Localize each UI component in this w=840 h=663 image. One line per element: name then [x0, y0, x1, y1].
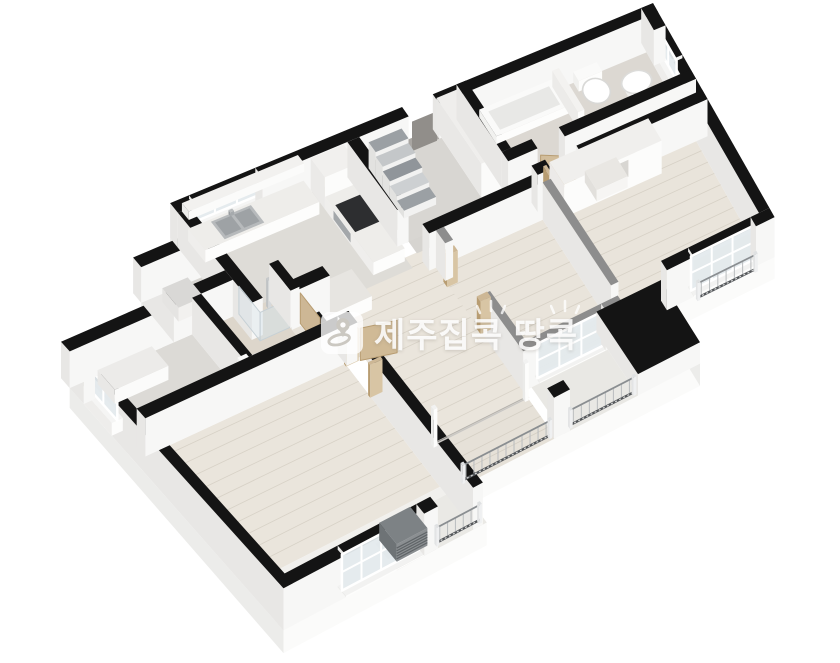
railing-bedroom-right: [755, 254, 758, 273]
railing-balcony-middle: [568, 408, 570, 429]
railing-balcony-middle: [570, 409, 573, 429]
railing-bedroom-right: [698, 282, 701, 301]
balcony-post: [523, 361, 525, 402]
railing-balcony-living: [548, 418, 550, 439]
wall: [654, 25, 666, 65]
railing-balcony-sw: [434, 525, 436, 547]
door-jamb: [481, 297, 491, 335]
floorplan-svg: [0, 0, 840, 663]
railing-balcony-living: [461, 463, 463, 484]
wall: [291, 287, 300, 328]
balcony-post: [525, 362, 529, 402]
balcony-post: [431, 406, 434, 447]
door-jamb: [370, 359, 382, 398]
door-jamb: [477, 296, 481, 334]
railing-bedroom-right: [696, 281, 698, 302]
shower-column: [266, 278, 268, 309]
wall: [347, 322, 358, 365]
wall: [554, 389, 570, 439]
railing-balcony-sw: [437, 526, 440, 546]
railing-balcony-middle: [634, 376, 637, 396]
floorplan-render: 제주집콕 땅콕: [0, 0, 840, 663]
door-jamb: [368, 362, 370, 398]
railing-balcony-living: [463, 464, 466, 484]
railing-bedroom-right: [753, 252, 755, 273]
railing-balcony-middle: [632, 375, 634, 396]
partition: [518, 345, 523, 392]
balcony-post: [434, 408, 438, 448]
partition: [445, 240, 453, 281]
railing-balcony-living: [549, 420, 552, 440]
railing-balcony-sw: [479, 504, 482, 524]
railing-balcony-sw: [477, 503, 479, 525]
